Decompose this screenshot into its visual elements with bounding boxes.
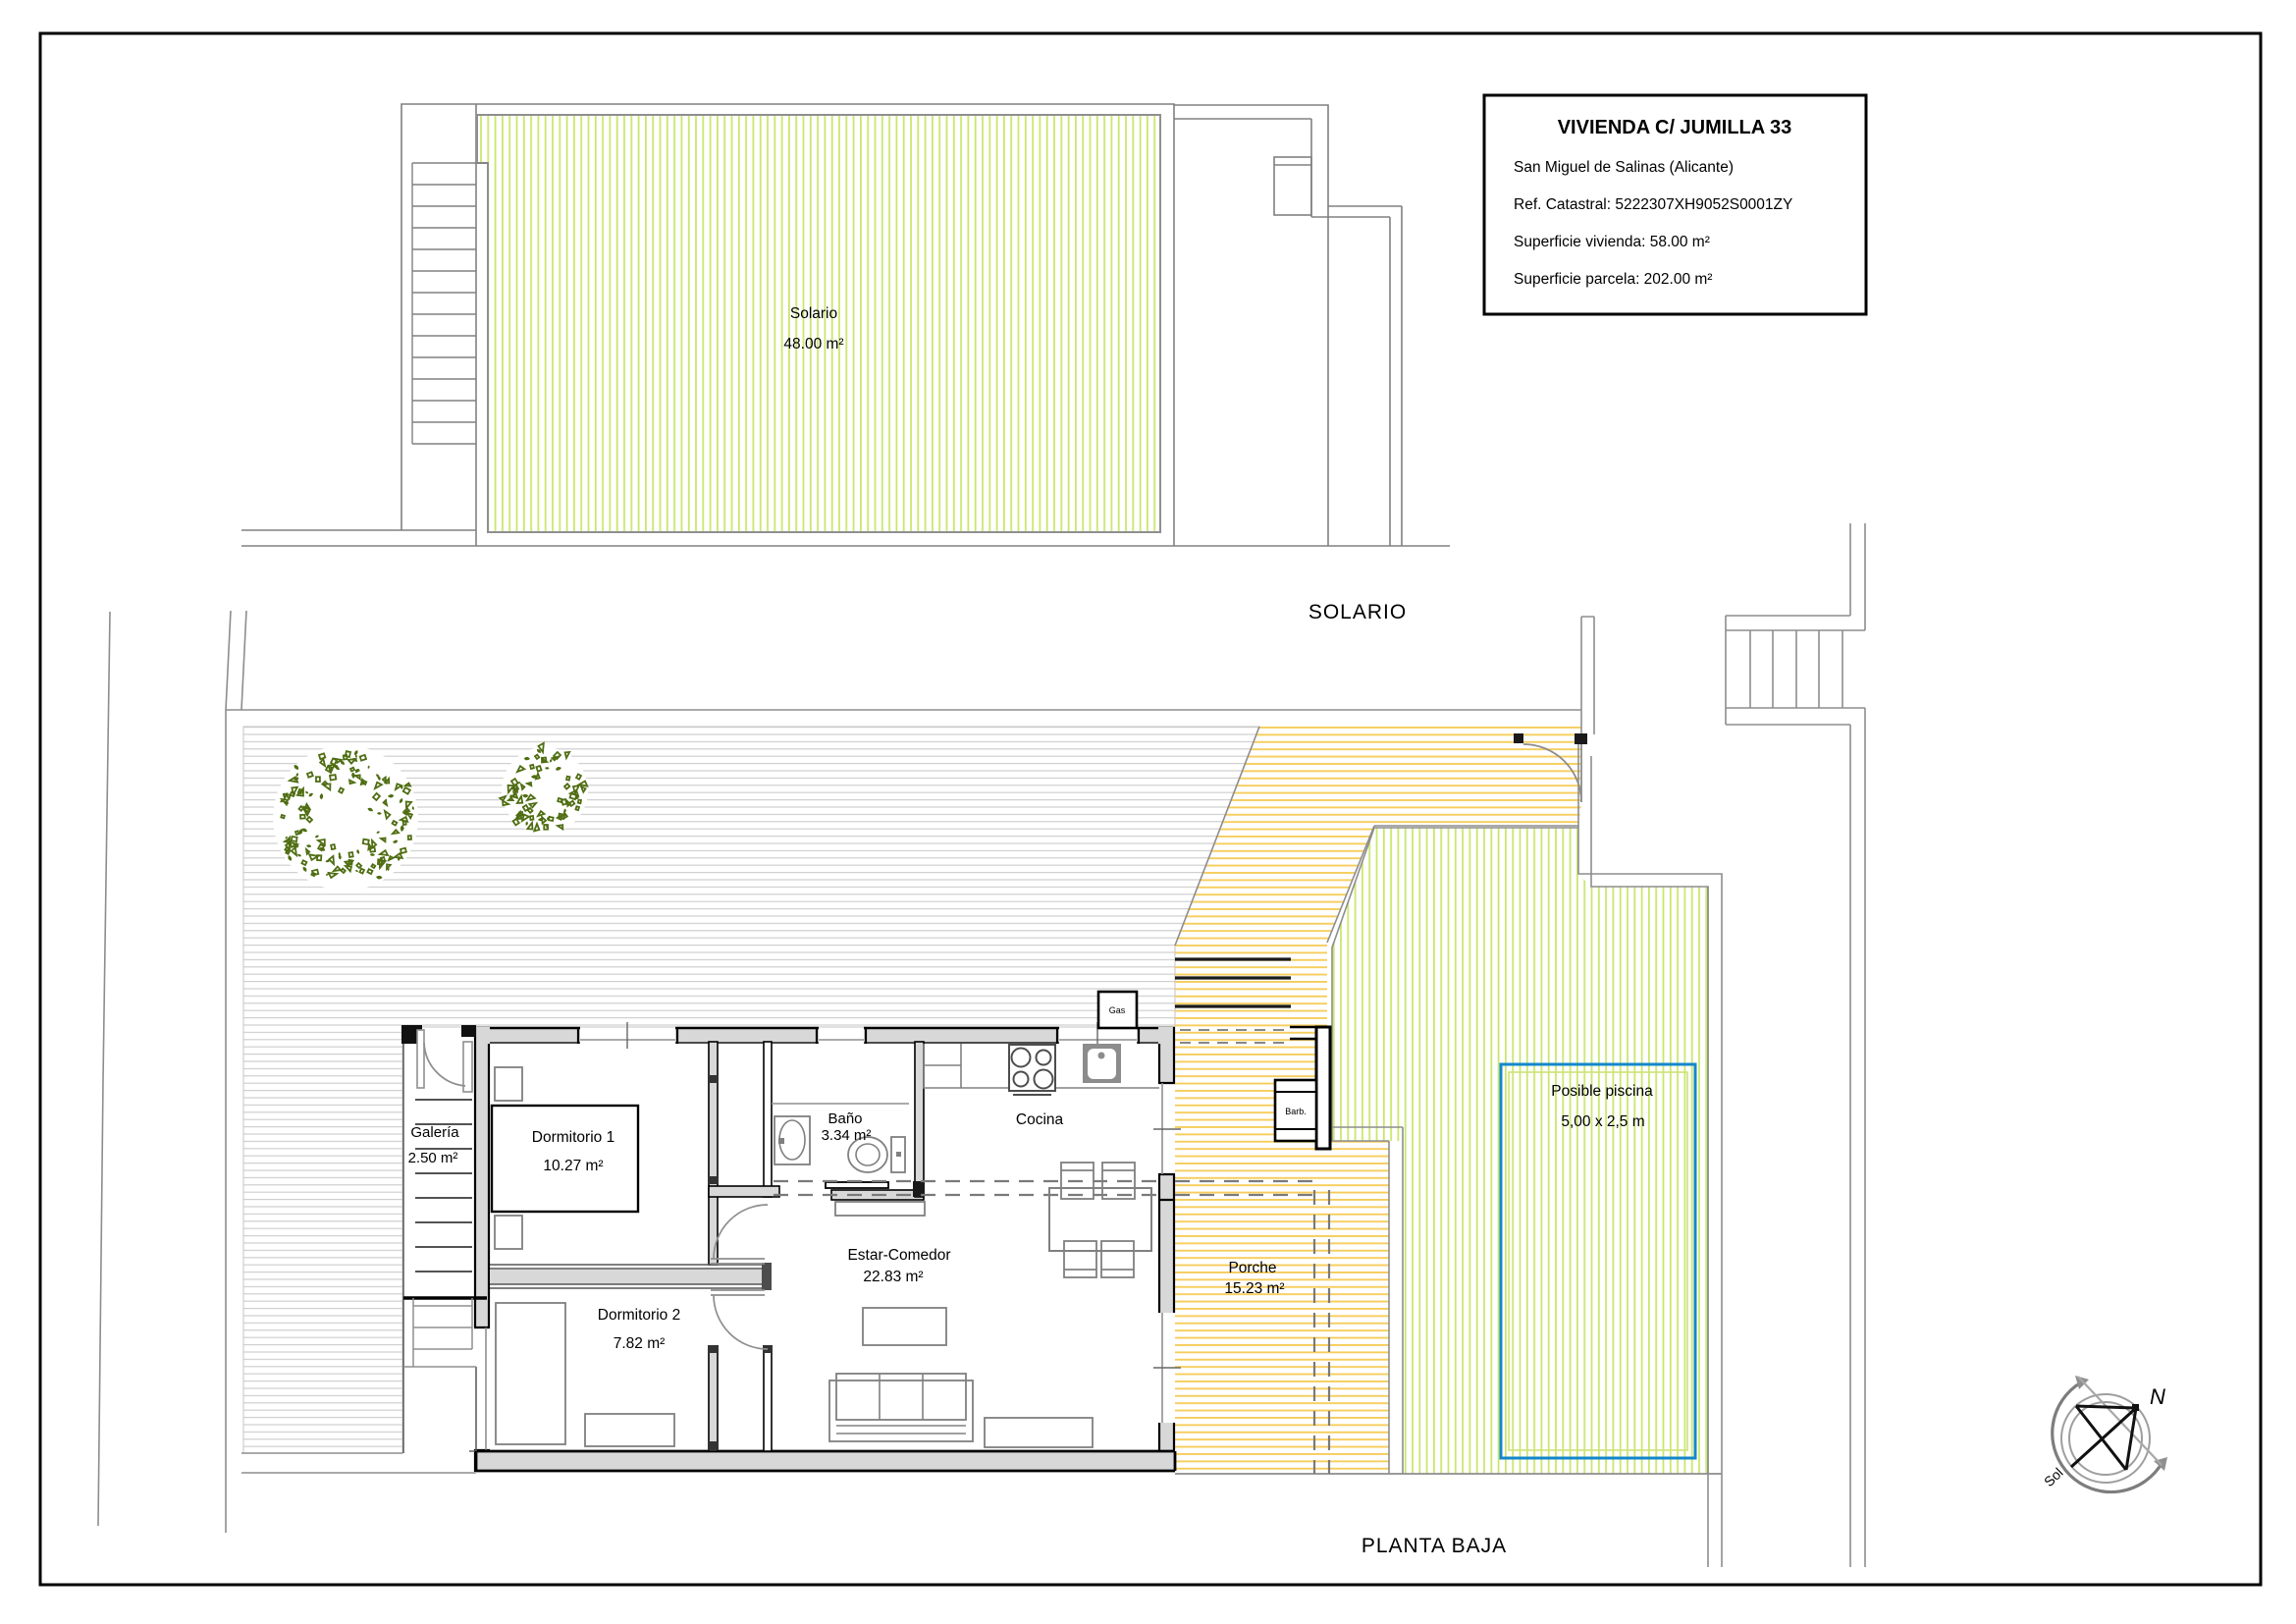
svg-text:Superficie parcela: 202.00 m²: Superficie parcela: 202.00 m² [1514,271,1712,288]
svg-text:Estar-Comedor: Estar-Comedor [847,1247,950,1264]
svg-text:Dormitorio 2: Dormitorio 2 [598,1307,680,1324]
svg-text:Posible piscina: Posible piscina [1551,1083,1653,1100]
svg-text:Solario: Solario [790,305,837,322]
svg-text:22.83 m²: 22.83 m² [863,1269,923,1285]
svg-text:2.50 m²: 2.50 m² [408,1150,458,1166]
svg-text:Cocina: Cocina [1016,1111,1064,1128]
svg-text:VIVIENDA C/ JUMILLA 33: VIVIENDA C/ JUMILLA 33 [1558,117,1792,138]
svg-text:Galería: Galería [410,1124,459,1141]
svg-text:7.82 m²: 7.82 m² [614,1335,666,1352]
svg-text:Ref. Catastral: 5222307XH9052S: Ref. Catastral: 5222307XH9052S0001ZY [1514,196,1792,213]
svg-text:Dormitorio 1: Dormitorio 1 [532,1129,614,1146]
svg-text:Barb.: Barb. [1285,1107,1307,1116]
svg-text:Baño: Baño [828,1110,862,1127]
svg-text:Porche: Porche [1228,1260,1276,1276]
svg-text:5,00 x 2,5 m: 5,00 x 2,5 m [1561,1113,1644,1130]
svg-text:Superficie vivienda: 58.00 m²: Superficie vivienda: 58.00 m² [1514,234,1710,250]
svg-text:N: N [2150,1384,2165,1409]
svg-text:SOLARIO: SOLARIO [1308,601,1407,623]
svg-text:10.27 m²: 10.27 m² [543,1158,603,1174]
svg-text:San Miguel de Salinas (Alicant: San Miguel de Salinas (Alicante) [1514,159,1734,176]
svg-text:15.23 m²: 15.23 m² [1224,1280,1284,1297]
svg-text:PLANTA BAJA: PLANTA BAJA [1362,1535,1507,1557]
svg-text:Gas: Gas [1109,1005,1126,1015]
svg-text:48.00 m²: 48.00 m² [783,336,843,352]
svg-text:3.34 m²: 3.34 m² [822,1127,872,1144]
